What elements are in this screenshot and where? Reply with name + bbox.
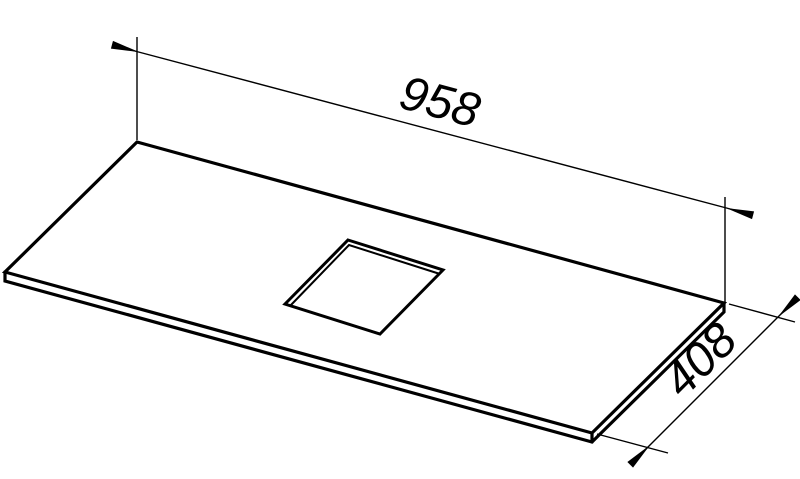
dimension-arrowhead — [111, 41, 140, 56]
dimension-arrowhead — [725, 204, 754, 219]
technical-drawing: 958 408 — [0, 0, 800, 479]
drawing-canvas: 958 408 — [0, 0, 800, 479]
dimension-label-length: 958 — [394, 67, 485, 139]
dimension-arrowhead — [775, 294, 800, 319]
extension-line — [729, 304, 795, 322]
